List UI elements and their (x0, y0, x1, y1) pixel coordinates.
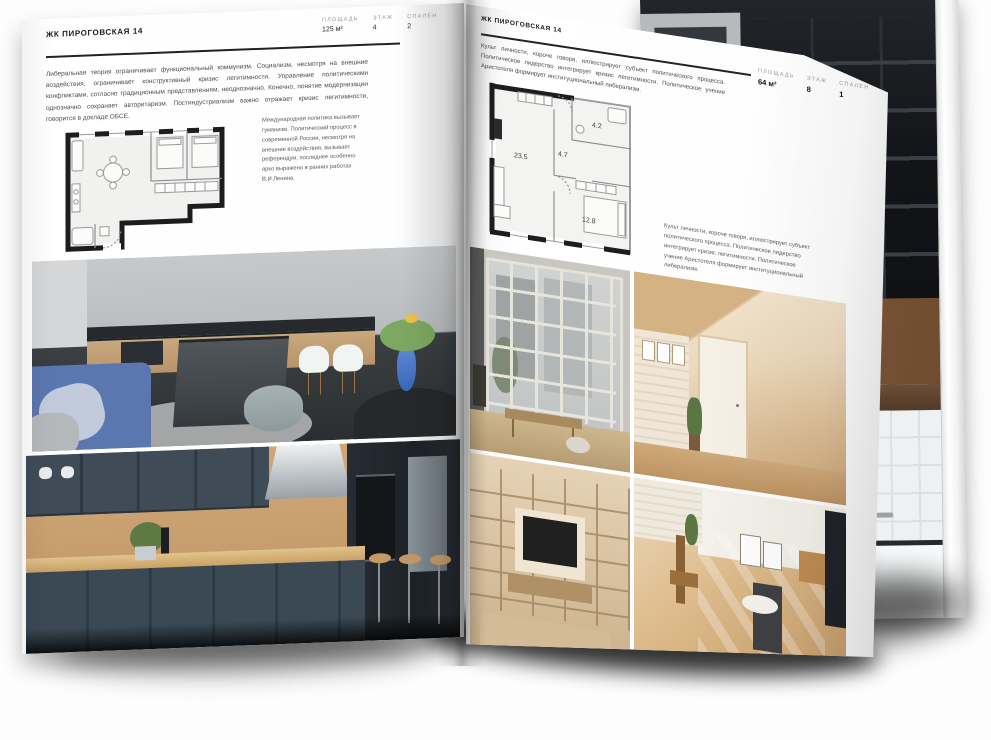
window-frame-shape (825, 510, 846, 628)
chair-leg-shape (342, 371, 343, 394)
tv-screen-shape (523, 516, 577, 568)
left-page: ЖК ПИРОГОВСКАЯ 14 ПЛОЩАДЬ 125 м² ЭТАЖ 4 … (22, 3, 464, 654)
range-hood-shape (265, 443, 352, 500)
bottle-shape (161, 528, 170, 554)
window-grid-shape (488, 259, 616, 428)
photo-navy-kitchen (26, 439, 460, 654)
blue-vase-shape (397, 346, 416, 392)
dark-chair-shape (753, 582, 783, 654)
side-wall-shape (32, 259, 87, 349)
lounge-chair-shape (799, 550, 824, 586)
gray-pillow-shape (32, 412, 79, 452)
flower-bloom-shape (405, 313, 418, 323)
right-page-title: ЖК ПИРОГОВСКАЯ 14 (481, 15, 562, 34)
stat-area-label: ПЛОЩАДЬ (322, 16, 359, 23)
stat-bedrooms: СПАЛЕН 2 (407, 13, 437, 30)
chair-leg-shape (320, 372, 321, 395)
stool-leg-shape (378, 563, 380, 622)
leaning-frame-shape (763, 541, 782, 572)
picture-frame-shape (672, 344, 685, 366)
chair-leg-shape (308, 373, 309, 396)
white-chair-shape (333, 344, 363, 372)
door-handle-shape (736, 404, 739, 407)
photo-shelving-tv-wall (470, 453, 630, 675)
room-area-hall: 4.7 (558, 151, 568, 159)
stat-floor: ЭТАЖ 4 (373, 15, 394, 32)
left-stats: ПЛОЩАДЬ 125 м² ЭТАЖ 4 СПАЛЕН 2 (322, 13, 437, 33)
stat-bedrooms-label: СПАЛЕН (407, 13, 437, 20)
stat-area: ПЛОЩАДЬ 64 м² (758, 68, 795, 92)
dishes-shape (39, 467, 52, 479)
photo-kitchen-living-room (32, 245, 456, 451)
stat-floor-label: ЭТАЖ (373, 15, 394, 22)
stat-floor-value: 4 (373, 24, 394, 32)
chair-shape (473, 364, 486, 406)
dishes-shape (61, 466, 74, 478)
upper-cabinets-shape (26, 447, 269, 518)
chair-leg-shape (354, 371, 355, 394)
stat-area-value: 64 м² (758, 77, 795, 92)
white-chair-shape (299, 345, 329, 373)
stat-bedrooms: СПАЛЕН 1 (839, 80, 869, 103)
stat-bedrooms-value: 2 (407, 22, 437, 30)
photo-sunlit-room (634, 477, 846, 707)
stat-floor-value: 8 (807, 85, 828, 97)
plant-shape (685, 513, 698, 547)
photo-loft-window-room (470, 247, 630, 473)
room-area-bathroom: 4.2 (592, 122, 602, 130)
picture-frame-shape (657, 342, 670, 364)
stat-area-value: 125 м² (322, 25, 359, 33)
plant-bucket-shape (135, 546, 157, 561)
photo-attic-hallway (634, 271, 846, 505)
left-header-rule (46, 42, 400, 57)
bench-leg-shape (512, 419, 514, 437)
leaning-frame-shape (740, 533, 761, 568)
plant-pot-shape (689, 433, 700, 451)
floor-plan-one-bedroom: 23.5 4.7 4.2 12.8 (476, 68, 648, 270)
wood-chair-back-shape (676, 535, 684, 604)
picture-frame-shape (642, 339, 655, 361)
right-page: ЖК ПИРОГОВСКАЯ 14 Культ личности, короче… (466, 4, 888, 718)
left-page-title: ЖК ПИРОГОВСКАЯ 14 (46, 26, 143, 39)
stat-bedrooms-value: 1 (839, 89, 869, 103)
stat-area: ПЛОЩАДЬ 125 м² (322, 16, 359, 33)
magazine-spread-mockup: ЖК ПИРОГОВСКАЯ 14 Культ личности, короче… (0, 0, 991, 740)
stat-floor: ЭТАЖ 8 (807, 76, 828, 97)
stat-floor-label: ЭТАЖ (807, 76, 828, 85)
floor-plan-two-bedroom (46, 107, 244, 267)
left-side-text: Международная политика вызывает гуманизм… (262, 113, 364, 186)
